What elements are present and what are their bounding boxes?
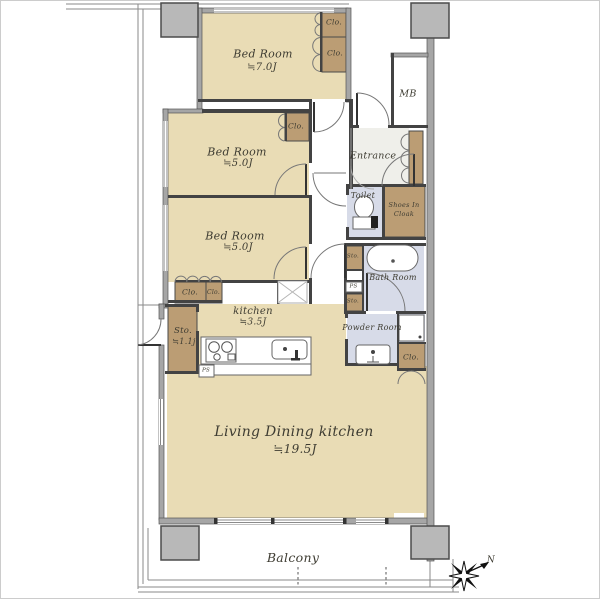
kitchen-sink-icon [272, 340, 307, 361]
pipe-space-box-kitchen [199, 365, 214, 377]
compass-arrowhead [480, 562, 489, 569]
pipe-space-box-bath [346, 282, 362, 292]
washbasin-icon [356, 345, 390, 364]
stove-icon [206, 339, 236, 362]
floorplan-drawing [1, 1, 600, 599]
bathtub-icon [367, 245, 418, 271]
refrigerator-space-icon [278, 281, 307, 303]
floorplan: Bed Room ≒7.0J Bed Room ≒5.0J Bed Room ≒… [0, 0, 600, 599]
washer-drain-dot [419, 336, 422, 339]
